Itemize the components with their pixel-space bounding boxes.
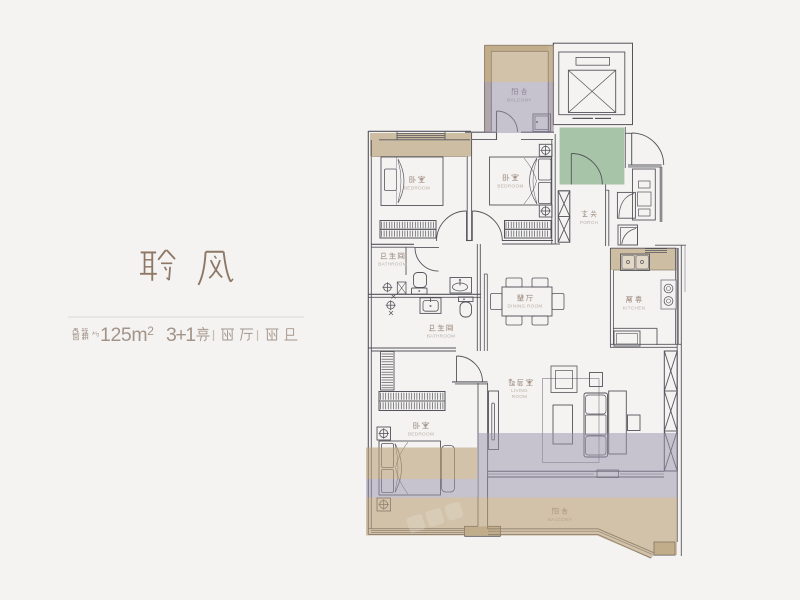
svg-text:BATHROOM: BATHROOM [427, 334, 456, 339]
svg-text:PORCH: PORCH [580, 220, 598, 225]
svg-text:BEDROOM: BEDROOM [404, 185, 430, 190]
svg-text:KITCHEN: KITCHEN [623, 306, 646, 311]
svg-text:125m2: 125m2 [100, 324, 154, 346]
svg-text:ROOM: ROOM [512, 394, 528, 399]
svg-text:BEDROOM: BEDROOM [497, 184, 523, 189]
svg-text:LIVING: LIVING [511, 388, 528, 393]
svg-text:BATHROOM: BATHROOM [378, 262, 407, 267]
svg-text:3+1: 3+1 [166, 324, 195, 346]
svg-text:DINING ROOM: DINING ROOM [508, 304, 543, 309]
svg-text:BEDROOM: BEDROOM [408, 432, 434, 437]
